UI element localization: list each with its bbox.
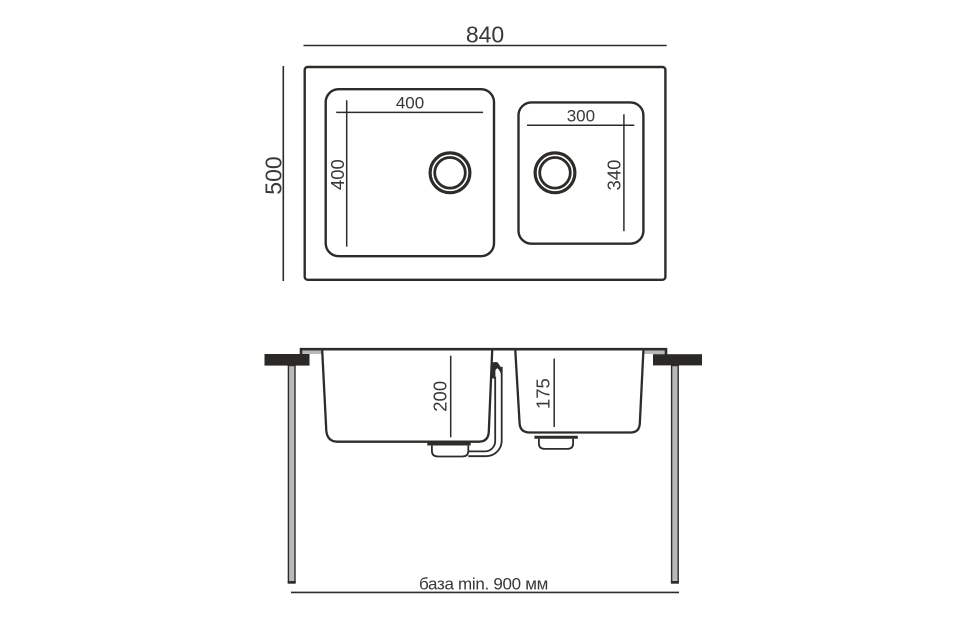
svg-text:400: 400 <box>396 94 424 113</box>
svg-text:340: 340 <box>604 160 625 191</box>
svg-text:400: 400 <box>327 159 348 190</box>
svg-text:500: 500 <box>260 156 286 194</box>
svg-text:база min. 900 мм: база min. 900 мм <box>419 574 548 593</box>
svg-text:300: 300 <box>567 107 595 126</box>
svg-text:840: 840 <box>466 22 504 48</box>
svg-text:200: 200 <box>429 381 450 412</box>
svg-text:175: 175 <box>532 378 553 409</box>
